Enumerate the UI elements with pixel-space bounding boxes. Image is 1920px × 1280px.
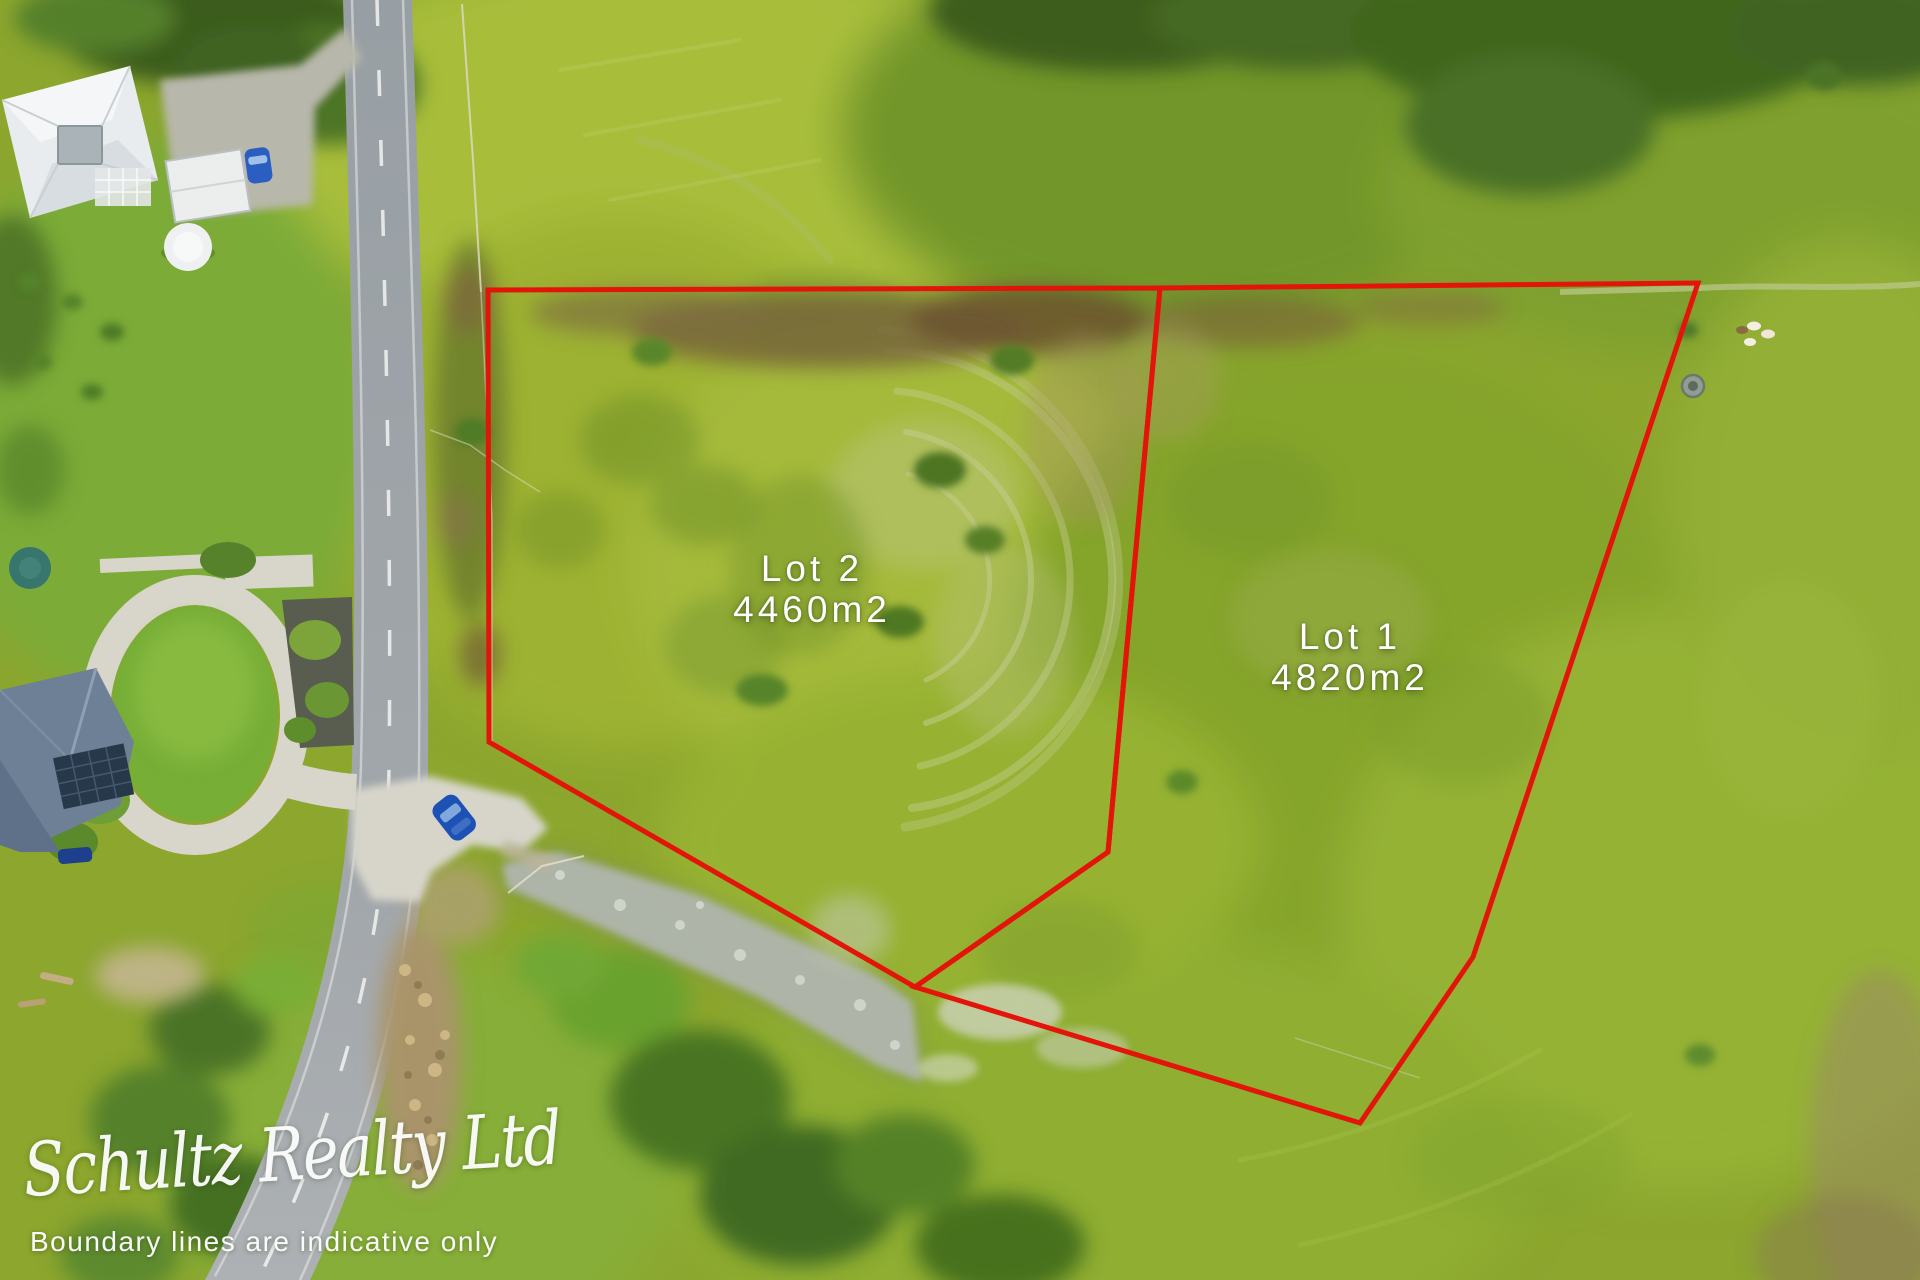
aerial-photo-canvas <box>0 0 1920 1280</box>
lot1-area: 4820m2 <box>1271 657 1429 698</box>
boundary-disclaimer: Boundary lines are indicative only <box>30 1226 498 1258</box>
aerial-property-photo: Lot 2 4460m2 Lot 1 4820m2 Schultz Realty… <box>0 0 1920 1280</box>
lot2-label: Lot 2 4460m2 <box>733 548 891 631</box>
shed <box>166 149 251 222</box>
driveway-connector <box>272 775 356 792</box>
lot1-name: Lot 1 <box>1271 616 1429 657</box>
lot1-label: Lot 1 4820m2 <box>1271 616 1429 699</box>
water-trough <box>1682 375 1704 397</box>
car-blue-1 <box>244 146 274 184</box>
lot2-area: 4460m2 <box>733 589 891 630</box>
lot2-name: Lot 2 <box>733 548 891 589</box>
car-blue-2 <box>57 847 92 865</box>
